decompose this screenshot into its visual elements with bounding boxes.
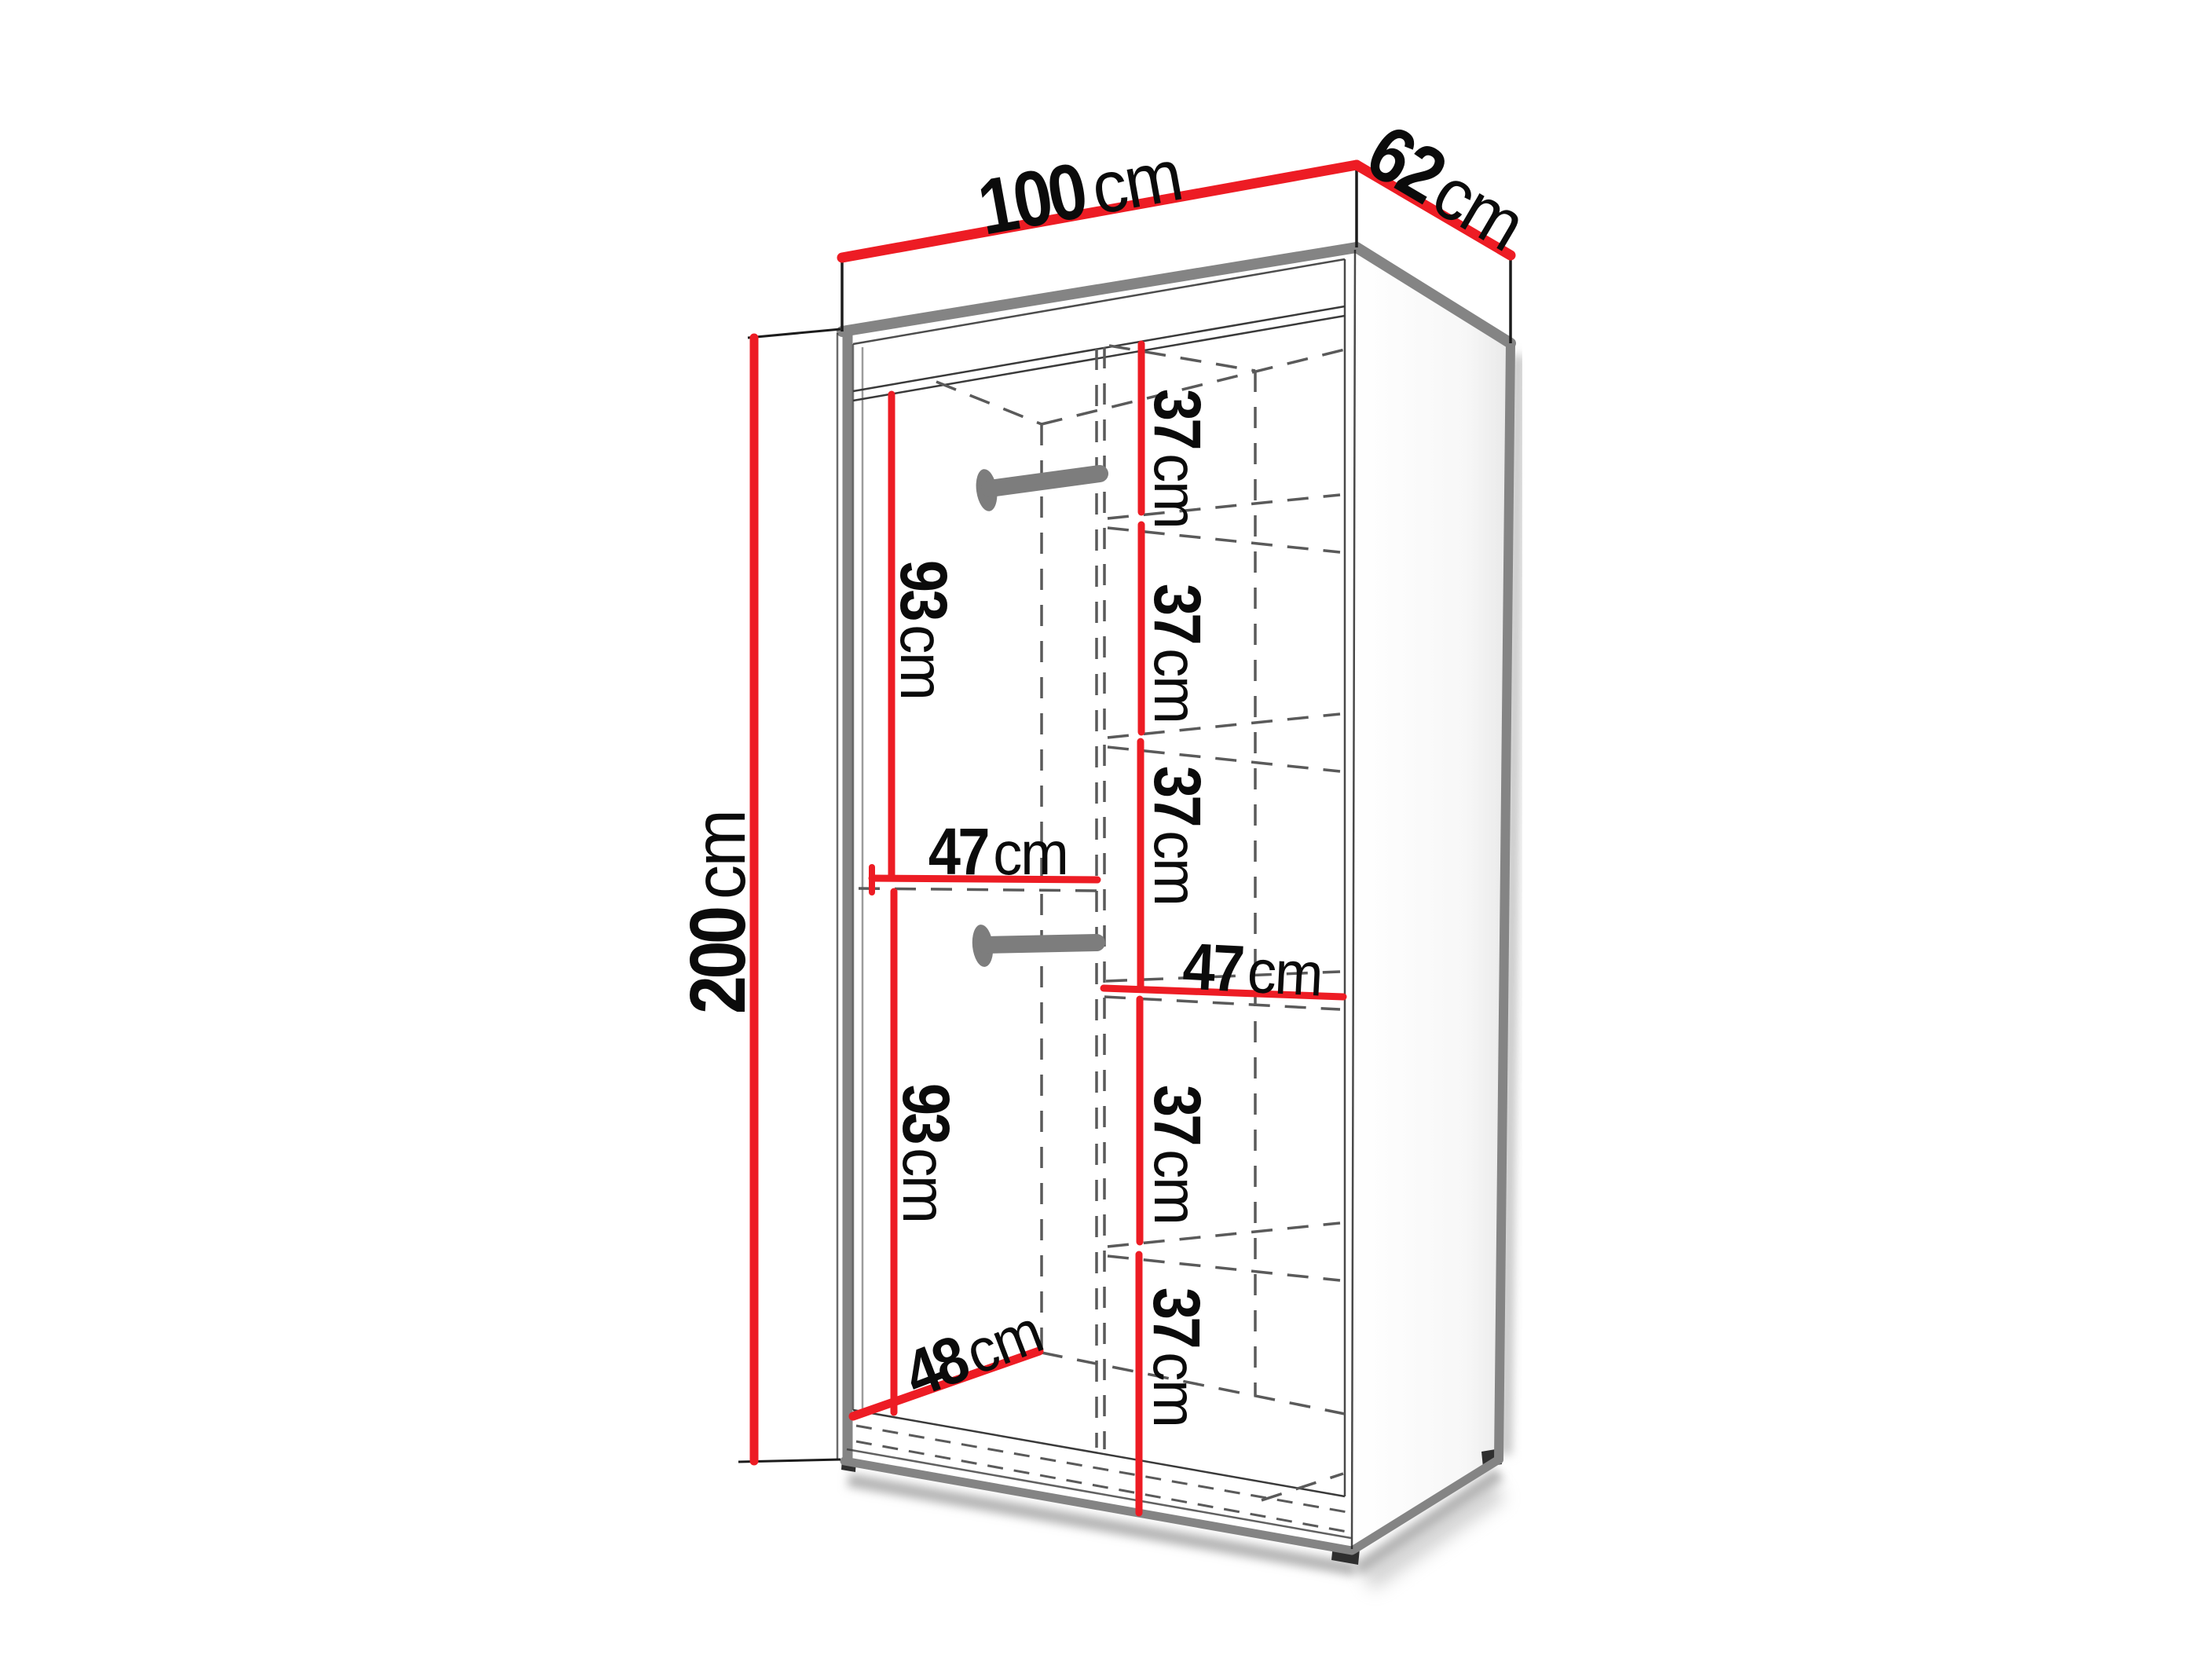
dim-label-height: 200cm bbox=[679, 809, 757, 1021]
dim-label-floor-depth: 48cm bbox=[892, 1296, 1051, 1409]
dim-unit: cm bbox=[1145, 830, 1207, 904]
dim-unit: cm bbox=[1086, 138, 1186, 226]
dim-value: 200 bbox=[679, 909, 757, 1014]
dim-value: 100 bbox=[972, 151, 1090, 247]
dim-unit: cm bbox=[1145, 453, 1207, 527]
dim-label-shelf-gap-1: 37cm bbox=[1144, 385, 1210, 529]
dim-label-shelf-width-right: 47cm bbox=[1177, 932, 1325, 1006]
dim-unit: cm bbox=[1145, 1149, 1207, 1223]
dim-unit: cm bbox=[1145, 648, 1207, 722]
dim-value: 47 bbox=[928, 819, 987, 884]
dim-unit: cm bbox=[958, 1300, 1049, 1384]
wardrobe-diagram-page: 100cm 62cm 200cm 93cm 47cm 93cm 48cm 47c… bbox=[0, 0, 2212, 1659]
dim-label-shelf-gap-3: 37cm bbox=[1144, 762, 1210, 906]
dim-label-depth-top: 62cm bbox=[1351, 109, 1540, 264]
dim-value: 37 bbox=[1144, 389, 1210, 448]
dim-label-shelf-gap-5: 37cm bbox=[1144, 1284, 1210, 1428]
dim-label-hanging-upper: 93cm bbox=[891, 556, 957, 701]
dim-unit: cm bbox=[894, 1148, 955, 1221]
dim-unit: cm bbox=[1144, 1352, 1206, 1426]
dim-unit: cm bbox=[892, 624, 953, 698]
dim-unit: cm bbox=[683, 811, 756, 899]
dim-value: 37 bbox=[1144, 766, 1210, 825]
dim-label-shelf-gap-4: 37cm bbox=[1144, 1081, 1210, 1225]
dim-label-shelf-width-left: 47cm bbox=[925, 819, 1069, 884]
dim-value: 37 bbox=[1144, 1085, 1210, 1144]
dim-value: 47 bbox=[1181, 933, 1243, 1002]
dim-unit: cm bbox=[1246, 940, 1323, 1005]
dimension-labels: 100cm 62cm 200cm 93cm 47cm 93cm 48cm 47c… bbox=[0, 0, 2212, 1659]
dim-label-width-top: 100cm bbox=[965, 134, 1188, 249]
dim-label-hanging-lower: 93cm bbox=[893, 1079, 959, 1224]
dim-value: 37 bbox=[1144, 584, 1210, 643]
dim-unit: cm bbox=[993, 822, 1067, 884]
dim-value: 37 bbox=[1144, 1287, 1210, 1346]
dim-label-shelf-gap-2: 37cm bbox=[1144, 580, 1210, 724]
dim-value: 93 bbox=[893, 1083, 959, 1142]
dim-value: 93 bbox=[891, 560, 957, 619]
